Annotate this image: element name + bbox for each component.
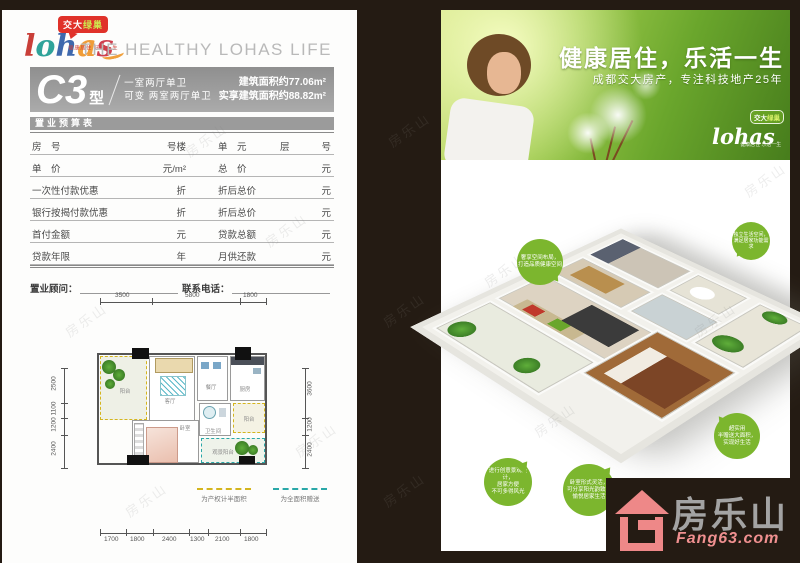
room-label: 厨房 — [240, 384, 251, 392]
unit-area2: 实享建筑面积约88.82m² — [219, 90, 326, 104]
tick — [61, 368, 68, 369]
table-row: 首付金额 元 贷款总额 元 — [30, 221, 334, 243]
unit-code-suffix: 型 — [89, 87, 104, 108]
row-unit2: 元 — [321, 227, 331, 241]
tick — [240, 298, 241, 305]
logo-letter: l — [24, 29, 35, 64]
unit-type-banner: C3 型 一室两厅单卫 可变 两室两厅单卫 建筑面积约77.06m² 实享建筑面… — [30, 67, 334, 112]
column-block — [132, 348, 149, 359]
row-unit: 元 — [138, 227, 186, 241]
tick — [100, 298, 101, 305]
unit-desc-line1: 一室两厅单卫 — [124, 77, 212, 90]
room-label: 餐厅 — [206, 382, 217, 390]
callout-bubble: 奢享空间布局， 打造品质健康空间 — [517, 239, 563, 285]
column-block — [127, 455, 149, 465]
row-label2: 月供还款 — [218, 249, 256, 263]
dim-label: 3600 — [307, 378, 314, 400]
legend-half-area: 为产权计半面积 — [189, 488, 259, 503]
hero-logo-bubble-text: 交大 — [754, 115, 767, 122]
dim-label: 2500 — [51, 373, 58, 395]
hero-lohas-logo: lohas 交大绿巢 健康居住 乐活一生 — [706, 110, 784, 156]
dim-label: 5800 — [185, 292, 199, 299]
appliance-icon — [253, 368, 261, 374]
english-header: THE HEALTHY LOHAS LIFE — [80, 40, 332, 60]
bed-icon — [146, 427, 178, 463]
hatch-area — [160, 376, 186, 396]
table-row: 一次性付款优惠 折 折后总价 元 — [30, 177, 334, 199]
row-label2: 折后总价 — [218, 205, 256, 219]
right-page: 健康居住，乐活一生 成都交大房产，专注科技地产25年 lohas 交大绿巢 健康… — [441, 10, 790, 551]
tick — [152, 298, 153, 305]
room-label: 客厅 — [165, 396, 176, 404]
budget-table: 房 号 号楼 单 元 层 号 单 价 元/m² 总 价 元 一次性付款优惠 折 … — [30, 132, 334, 295]
row-unit2: 号 — [321, 139, 331, 153]
room-label: 卫生间 — [205, 426, 221, 434]
dim-label: 2100 — [215, 536, 229, 543]
brand-site: Fang63.com — [676, 530, 779, 548]
table-icon — [201, 362, 209, 369]
dim-label: 3500 — [115, 292, 129, 299]
watermark: 房乐山 — [384, 108, 434, 151]
row-label: 银行按揭付款优惠 — [32, 205, 108, 219]
row-label: 首付金额 — [32, 227, 70, 241]
callout-line: 实现好生活 — [723, 440, 751, 447]
house-icon — [614, 490, 670, 554]
callout-bubble: 独立生活空间， 满足居家功能需求 — [732, 222, 770, 260]
legend-dash-teal — [273, 488, 327, 490]
hero-logo-bubble: 交大绿巢 — [750, 110, 784, 124]
dim-label: 1700 — [104, 536, 118, 543]
row-unit2: 元 — [321, 183, 331, 197]
tick — [153, 529, 154, 536]
room-label: 阳台 — [120, 386, 131, 394]
tick — [61, 468, 68, 469]
row-label2: 总 价 — [218, 161, 247, 175]
sofa-icon — [155, 358, 193, 373]
table-row: 银行按揭付款优惠 折 折后总价 元 — [30, 199, 334, 221]
unit-desc-line2: 可变 两室两厅单卫 — [124, 90, 212, 103]
callout-line: 愉悦居家生活 — [572, 494, 605, 501]
dim-label: 2400 — [162, 536, 176, 543]
logo-bubble-text-green: 绿巢 — [83, 20, 103, 30]
hero-logo-tagline: 健康居住 乐活一生 — [741, 140, 782, 147]
row-mid: 层 — [280, 139, 290, 153]
legend-label: 为产权计半面积 — [201, 496, 247, 503]
table-row: 贷款年限 年 月供还款 元 — [30, 243, 334, 265]
shower-icon — [203, 406, 216, 419]
row-label: 房 号 — [32, 139, 61, 153]
plant-icon — [248, 445, 258, 455]
logo-bubble-text: 交大 — [63, 20, 83, 30]
dim-line-top — [100, 302, 267, 303]
row-unit2: 元 — [321, 205, 331, 219]
tick — [61, 418, 68, 419]
tick — [302, 368, 309, 369]
dim-label: 1800 — [243, 292, 257, 299]
tick — [100, 529, 101, 536]
unit-areas: 建筑面积约77.06m² 实享建筑面积约88.82m² — [219, 76, 326, 104]
table-icon — [213, 362, 221, 369]
callout-line: 卧室形式灵活， — [570, 480, 609, 487]
callout-line: 不可多得风光 — [491, 489, 524, 496]
room-label: 观景阳台 — [212, 447, 234, 455]
legend-label: 为全面积赠送 — [281, 496, 320, 503]
dim-label: 1800 — [244, 536, 258, 543]
girl-face — [487, 52, 521, 94]
toilet-icon — [219, 408, 226, 417]
dandelion-icon — [567, 112, 609, 154]
row-label: 单 价 — [32, 161, 61, 175]
girl-body — [443, 96, 536, 160]
watermark: 房乐山 — [379, 468, 429, 511]
row-unit2: 元 — [321, 161, 331, 175]
budget-table-title: 置业预算表 — [30, 117, 334, 130]
hero-subline: 成都交大房产，专注科技地产25年 — [593, 71, 783, 87]
fanglesha-logo-panel: 房乐山 Fang63.com — [606, 478, 800, 563]
dim-label: 1200 — [51, 414, 58, 436]
hero-logo-bubble-text-green: 绿巢 — [767, 115, 780, 122]
table-row: 单 价 元/m² 总 价 元 — [30, 155, 334, 177]
plant-icon — [113, 369, 125, 381]
dim-label: 1200 — [307, 414, 314, 436]
row-label: 一次性付款优惠 — [32, 183, 99, 197]
row-unit: 元/m² — [138, 161, 186, 175]
legend-gift-area: 为全面积赠送 — [265, 488, 335, 503]
column-block — [239, 456, 255, 464]
row-unit2: 元 — [321, 249, 331, 263]
logo-letter: o — [35, 29, 55, 64]
tick — [266, 529, 267, 536]
callout-line: 超实用 — [729, 426, 746, 433]
tick — [240, 529, 241, 536]
house-roof — [615, 490, 669, 514]
house-hook — [638, 520, 656, 530]
tick — [302, 468, 309, 469]
tick — [61, 403, 68, 404]
hero-photo: 健康居住，乐活一生 成都交大房产，专注科技地产25年 lohas 交大绿巢 健康… — [441, 10, 790, 160]
table-row: 房 号 号楼 单 元 层 号 — [30, 133, 334, 155]
hero-headline: 健康居住，乐活一生 — [559, 39, 784, 73]
left-page: lohas 交大绿巢 健康居住 乐活一生 THE HEALTHY LOHAS L… — [2, 10, 357, 563]
room-label: 卧室 — [180, 423, 191, 431]
row-unit: 年 — [138, 249, 186, 263]
floor-plan: 3500 5800 1800 2500 1100 1200 2400 3600 … — [27, 290, 322, 555]
row-label: 贷款年限 — [32, 249, 70, 263]
unit-area1: 建筑面积约77.06m² — [219, 76, 326, 90]
tick — [61, 435, 68, 436]
dim-label: 1300 — [190, 536, 204, 543]
callout-line: 居家方便 — [497, 482, 519, 489]
row-unit: 折 — [138, 183, 186, 197]
row-label2: 折后总价 — [218, 183, 256, 197]
plant-icon — [235, 441, 249, 455]
dim-label: 2400 — [51, 438, 58, 460]
legend-dash-yellow — [197, 488, 251, 490]
row-unit: 折 — [138, 205, 186, 219]
plant-icon — [105, 379, 115, 389]
unit-code: C3 — [36, 70, 87, 110]
room-label: 阳台 — [244, 414, 255, 422]
tick — [208, 529, 209, 536]
row-label2: 单 元 — [218, 139, 247, 153]
callout-bubble: 超实用 半赠送大面积， 实现好生活 — [714, 413, 760, 459]
divider — [109, 74, 121, 104]
tick — [126, 529, 127, 536]
tick — [189, 529, 190, 536]
dim-label: 2400 — [307, 439, 314, 461]
column-block — [235, 347, 251, 360]
tick — [266, 298, 267, 305]
callout-line: 打造品质健康空间 — [518, 262, 562, 269]
logo-speech-bubble: 交大绿巢 — [58, 16, 108, 33]
row-unit: 号楼 — [138, 139, 186, 153]
row-label2: 贷款总额 — [218, 227, 256, 241]
callout-line: 可分享阳光韵致， — [567, 487, 611, 494]
unit-description: 一室两厅单卫 可变 两室两厅单卫 — [124, 77, 212, 103]
callout-line: 奢享空间布局， — [521, 255, 560, 262]
callout-bubble: 进行创意景观设计， 居家方便 不可多得风光 — [484, 458, 532, 506]
dim-label: 1800 — [130, 536, 144, 543]
callout-line: 半赠送大面积， — [718, 433, 757, 440]
